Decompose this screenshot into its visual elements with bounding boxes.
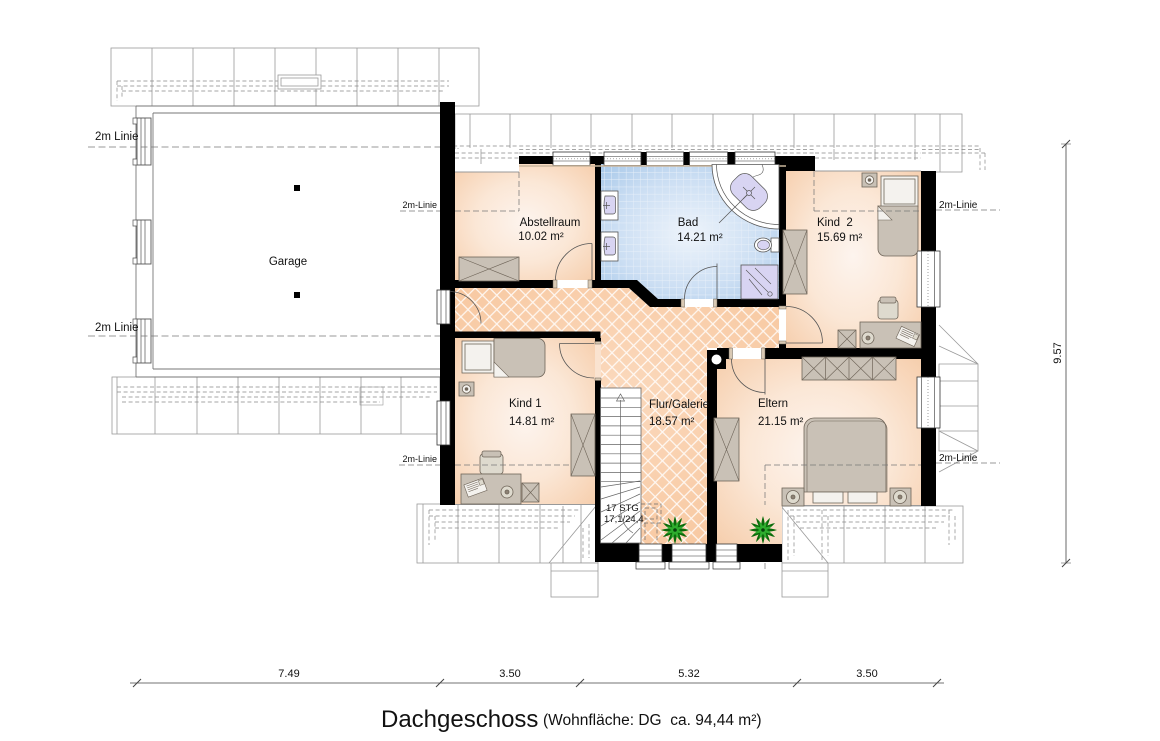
svg-text:14.21 m²: 14.21 m² (677, 232, 723, 244)
svg-text:3.50: 3.50 (856, 668, 877, 680)
svg-text:2m Linie: 2m Linie (95, 322, 138, 334)
svg-text:15.69 m²: 15.69 m² (817, 232, 863, 244)
svg-text:9.57: 9.57 (1052, 342, 1064, 363)
svg-text:10.02 m²: 10.02 m² (518, 231, 564, 243)
svg-text:Bad: Bad (678, 217, 698, 229)
svg-text:2m-Linie: 2m-Linie (402, 200, 437, 210)
svg-text:Abstellraum: Abstellraum (520, 217, 581, 229)
svg-text:14.81 m²: 14.81 m² (509, 416, 555, 428)
svg-text:Garage: Garage (269, 256, 307, 268)
svg-text:17,1/24,4: 17,1/24,4 (604, 514, 644, 525)
svg-text:2m-Linie: 2m-Linie (939, 200, 978, 211)
svg-text:18.57 m²: 18.57 m² (649, 416, 695, 428)
svg-text:2m-Linie: 2m-Linie (402, 454, 437, 464)
svg-text:Dachgeschoss: Dachgeschoss (381, 706, 538, 733)
svg-text:Kind 2: Kind 2 (817, 217, 853, 229)
svg-text:Flur/Galerie: Flur/Galerie (649, 399, 709, 411)
svg-text:17 STG: 17 STG (606, 503, 639, 514)
svg-text:21.15 m²: 21.15 m² (758, 416, 804, 428)
svg-text:(Wohnfläche: DG ca. 94,44 m²): (Wohnfläche: DG ca. 94,44 m²) (543, 712, 762, 729)
svg-text:3.50: 3.50 (499, 668, 520, 680)
svg-text:2m Linie: 2m Linie (95, 131, 138, 143)
svg-text:Eltern: Eltern (758, 398, 788, 410)
svg-text:7.49: 7.49 (278, 668, 299, 680)
svg-text:2m-Linie: 2m-Linie (939, 453, 978, 464)
svg-text:5.32: 5.32 (678, 668, 699, 680)
svg-text:Kind 1: Kind 1 (509, 398, 542, 410)
